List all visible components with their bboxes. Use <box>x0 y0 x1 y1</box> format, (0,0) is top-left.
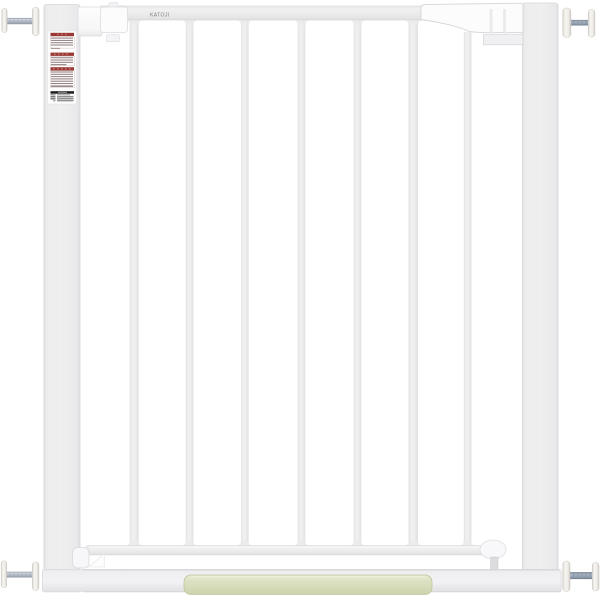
svg-text:KATOJI: KATOJI <box>150 12 170 18</box>
